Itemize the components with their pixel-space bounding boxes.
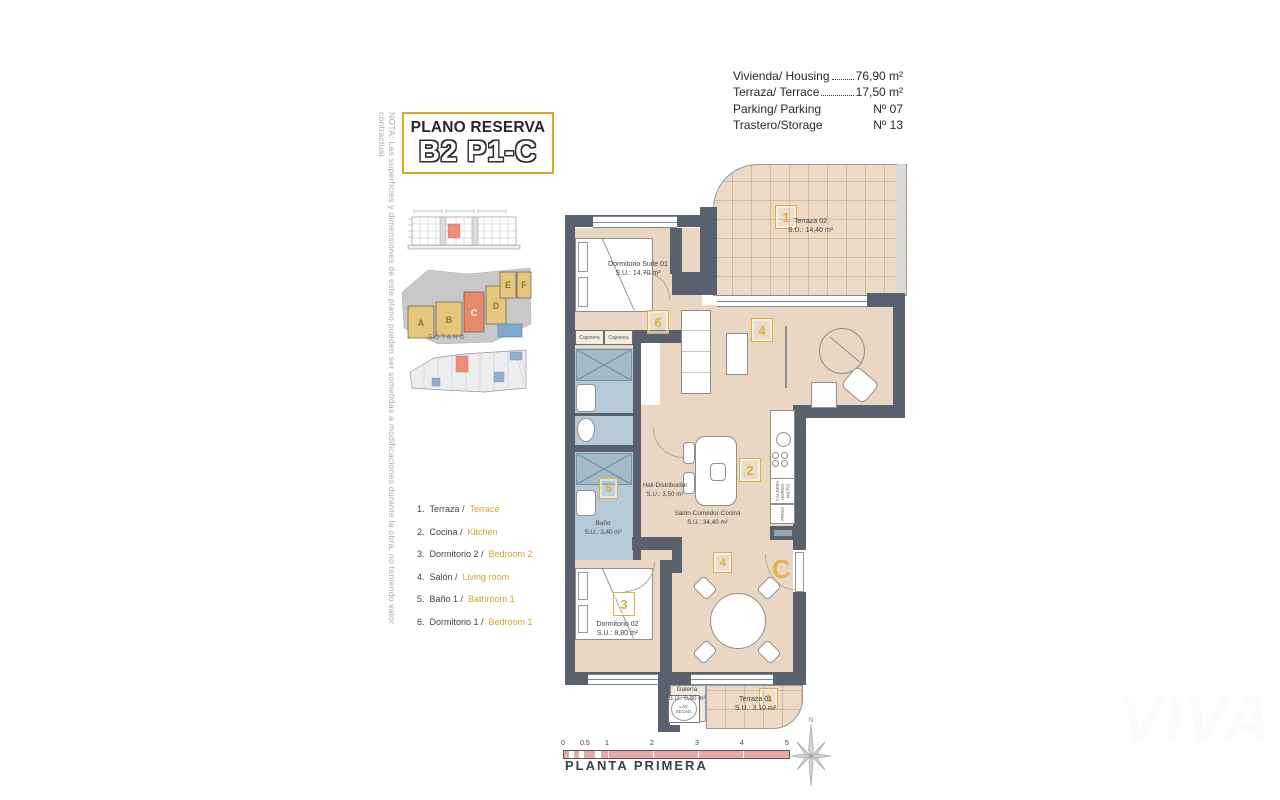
legend-number: 3. (417, 549, 425, 559)
sotano-label: SÓTANO (428, 334, 466, 341)
scale-tick: 1 (605, 740, 609, 747)
info-value: Nº 07 (873, 102, 903, 116)
wall (793, 405, 905, 418)
label-galeria: GaleríaS.U.: 0,80 m² (661, 686, 713, 703)
scale-tick: 0 (561, 740, 565, 747)
fridge-label: FRIGO (780, 507, 785, 521)
scale-tick: 0.5 (580, 740, 590, 747)
legend-en: Living room (463, 572, 510, 582)
entrance-door-leaf (795, 552, 804, 592)
badge-dorm02: 3 (613, 592, 635, 616)
legend-item: 4.Salón /Living room (417, 572, 533, 582)
label-dorm02: Dormitorio 02S.U.: 8,80 m² (575, 620, 660, 639)
burner (781, 460, 788, 467)
wall (893, 293, 905, 415)
label-terraza02: Terraza 02S.U.: 14,40 m² (758, 217, 863, 236)
scale-ticks: 0 0.5 1 2 3 4 5 (563, 740, 790, 749)
label-hall: Hall-DistribuidorS.U.: 3,50 m² (621, 482, 709, 499)
stool (683, 442, 695, 464)
badge-kitchen: 2 (739, 458, 761, 482)
drawer-unit: Cajonera (575, 330, 604, 345)
scale-tick: 2 (650, 740, 654, 747)
sink (576, 384, 596, 412)
fridge: FRIGO (770, 504, 795, 524)
legend-en: Bathroom 1 (468, 594, 515, 604)
block-letter: E (505, 280, 511, 290)
pillow (578, 242, 588, 272)
legend-es: Cocina / (430, 527, 463, 537)
burner (772, 452, 779, 459)
wall (575, 445, 633, 452)
burner (772, 460, 779, 467)
legend-en: Bedroom 1 (489, 617, 533, 627)
scale-divider (653, 751, 654, 758)
site-plan-diagram: A B C D E F (398, 262, 535, 348)
title-box: PLANO RESERVA B2 P1-C (402, 112, 554, 174)
legend-en: Kitchen (468, 527, 498, 537)
room-legend: 1.Terraza /Terrace 2.Cocina /Kitchen 3.D… (417, 504, 533, 639)
legend-es: Salón / (430, 572, 458, 582)
legend-es: Terraza / (430, 504, 465, 514)
window (691, 674, 773, 685)
block-letter-highlight: C (471, 308, 478, 318)
appliance-column: CALDERA HORNO-MICRO (770, 478, 795, 504)
drawer-label: Cajonera (579, 335, 599, 341)
info-row: Trastero/Storage Nº 13 (733, 116, 903, 133)
label-bano: BañoS.U.: 3,40 m² (575, 520, 631, 537)
wall (658, 725, 680, 732)
info-row: Terraza/ Terrace 17,50 m² (733, 83, 903, 100)
surfaces-info: Vivienda/ Housing 76,90 m² Terraza/ Terr… (733, 66, 903, 132)
plan-caption: PLANTA PRIMERA (565, 758, 708, 773)
info-value: 17,50 m² (856, 85, 903, 99)
side-table (811, 382, 837, 408)
legend-item: 3.Dormitorio 2 /Bedroom 2 (417, 549, 533, 559)
sink (576, 490, 596, 516)
disclaimer-note: NOTA: Las superficies y dimensiones de e… (377, 112, 397, 664)
north-compass: N (783, 712, 839, 788)
scale-cell (569, 751, 574, 758)
pillow (578, 572, 588, 600)
legend-number: 1. (417, 504, 425, 514)
label-salon: Salón-Comedor-CocinaS.U.: 34,40 m² (655, 510, 760, 527)
wall (575, 413, 633, 416)
legend-item: 6.Dormitorio 1 /Bedroom 1 (417, 617, 533, 627)
unit-code: B2 P1-C (419, 137, 537, 167)
legend-es: Baño 1 / (430, 594, 464, 604)
legend-en: Terrace (470, 504, 500, 514)
entrance-letter: C (772, 554, 791, 585)
tv-unit (785, 326, 787, 388)
pillow (578, 277, 588, 307)
window (588, 674, 658, 685)
badge-living: 4 (751, 318, 773, 342)
building-elevation-diagram (404, 203, 524, 259)
watermark: VIVA (1120, 682, 1273, 756)
badge-bano: 5 (599, 478, 618, 499)
scale-tick: 4 (740, 740, 744, 747)
terrace-window (717, 295, 867, 307)
scale-bar: 0 0.5 1 2 3 4 5 (563, 740, 790, 759)
label-suite: Dormitorio Suite 01S.U.: 14,70 m² (588, 260, 688, 279)
basement-plan-diagram (404, 344, 529, 396)
block-letter: B (446, 315, 453, 325)
legend-number: 2. (417, 527, 425, 537)
block-letter: A (418, 318, 425, 328)
info-label: Terraza/ Terrace (733, 85, 819, 99)
north-letter: N (808, 717, 813, 724)
wall (672, 550, 682, 573)
scale-tick: 3 (695, 740, 699, 747)
appliance-label: CALDERA HORNO-MICRO (775, 479, 790, 503)
kitchen-shelf (770, 526, 796, 540)
info-row: Parking/ Parking Nº 07 (733, 99, 903, 116)
wall (632, 537, 682, 550)
legend-item: 1.Terraza /Terrace (417, 504, 533, 514)
drawer-unit: Cajonera (604, 330, 633, 345)
shower (576, 349, 632, 381)
info-row: Vivienda/ Housing 76,90 m² (733, 66, 903, 83)
terrace-edge (897, 164, 905, 294)
window (593, 216, 677, 228)
info-label: Vivienda/ Housing (733, 69, 830, 83)
scale-divider (698, 751, 699, 758)
drawer-label: Cajonera (608, 335, 628, 341)
badge-dining: 4 (713, 552, 732, 573)
info-value: 76,90 m² (856, 69, 903, 83)
scale-cell (579, 751, 584, 758)
wall (633, 330, 641, 560)
info-label: Parking/ Parking (733, 102, 821, 116)
scale-cell (595, 751, 601, 758)
badge-suite: 6 (647, 310, 669, 334)
legend-item: 2.Cocina /Kitchen (417, 527, 533, 537)
legend-es: Dormitorio 1 / (430, 617, 484, 627)
plan-kicker: PLANO RESERVA (411, 119, 546, 137)
legend-es: Dormitorio 2 / (430, 549, 484, 559)
legend-number: 6. (417, 617, 425, 627)
legend-en: Bedroom 2 (489, 549, 533, 559)
dotted-leader (821, 95, 853, 96)
floor-plan: Cajonera Cajonera CALDERA HORNO-MICRO FR… (563, 160, 915, 738)
sofa (681, 310, 711, 394)
wall (565, 215, 575, 685)
burner (781, 452, 788, 459)
coffee-table (726, 333, 748, 375)
info-label: Trastero/Storage (733, 118, 823, 132)
scale-divider (608, 751, 609, 758)
block-letter: F (521, 280, 527, 290)
block-letter: D (493, 301, 500, 311)
info-value: Nº 13 (873, 118, 903, 132)
dotted-leader (832, 79, 854, 80)
dining-table (710, 593, 766, 649)
island-sink (710, 463, 726, 481)
wall (660, 560, 672, 672)
legend-number: 4. (417, 572, 425, 582)
scale-divider (743, 751, 744, 758)
legend-item: 5.Baño 1 /Bathroom 1 (417, 594, 533, 604)
legend-number: 5. (417, 594, 425, 604)
kitchen-sink (776, 432, 791, 447)
shelf-inner (774, 530, 792, 536)
